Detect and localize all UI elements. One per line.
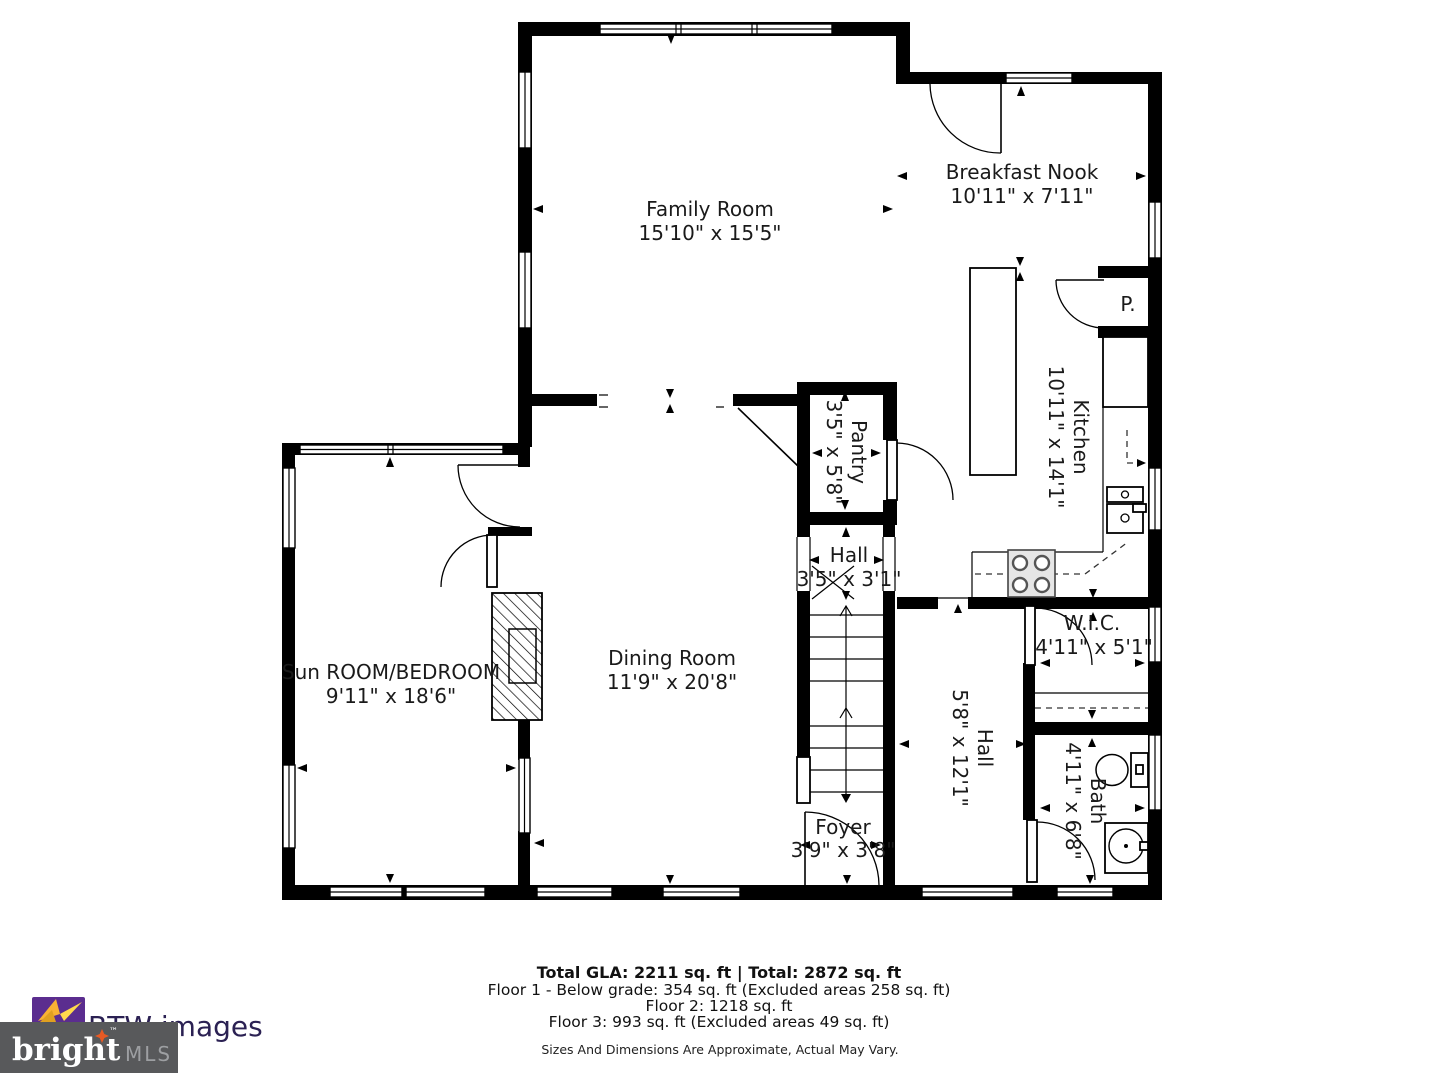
trademark-symbol: ™ <box>109 1027 118 1037</box>
footer-disclaimer: Sizes And Dimensions Are Approximate, Ac… <box>541 1042 898 1057</box>
kitchen-sink-icon <box>1107 487 1146 533</box>
room-label-kitchen: Kitchen <box>1069 399 1093 474</box>
branding: BTW images bright ™ MLS <box>0 997 263 1073</box>
fireplace-icon <box>492 593 542 720</box>
room-dims-pantry: 3'5" x 5'8" <box>822 400 846 505</box>
stove-icon <box>1008 550 1055 597</box>
room-label-hall-lower: Hall <box>973 729 997 767</box>
room-dims-wic: 4'11" x 5'1" <box>1035 635 1153 659</box>
walls <box>282 22 1162 900</box>
room-label-dining: Dining Room <box>608 646 736 670</box>
room-label-wic: W.I.C. <box>1064 611 1120 635</box>
bath-sink-icon <box>1105 823 1148 873</box>
room-dims-kitchen: 10'11" x 14'1" <box>1044 365 1068 508</box>
mls-suffix-text: MLS <box>125 1042 172 1066</box>
floor-plan-canvas: Family Room 15'10" x 15'5" Breakfast Noo… <box>0 0 1440 1080</box>
footer-total: Total GLA: 2211 sq. ft | Total: 2872 sq.… <box>537 963 902 983</box>
room-label-family: Family Room <box>646 197 774 221</box>
kitchen-island <box>970 268 1016 475</box>
room-labels: Family Room 15'10" x 15'5" Breakfast Noo… <box>282 160 1153 862</box>
room-dims-nook: 10'11" x 7'11" <box>950 184 1093 208</box>
room-dims-sunroom: 9'11" x 18'6" <box>326 684 456 708</box>
footer: Total GLA: 2211 sq. ft | Total: 2872 sq.… <box>488 963 951 1057</box>
room-dims-dining: 11'9" x 20'8" <box>607 670 737 694</box>
closet-shelving <box>1035 693 1148 708</box>
room-label-foyer: Foyer <box>815 815 871 839</box>
footer-floor3: Floor 3: 993 sq. ft (Excluded areas 49 s… <box>549 1013 890 1031</box>
refrigerator <box>1103 337 1148 407</box>
room-label-bath: Bath <box>1086 778 1110 825</box>
floor-plan-page: Family Room 15'10" x 15'5" Breakfast Noo… <box>0 0 1440 1080</box>
room-dims-hall-lower: 5'8" x 12'1" <box>948 689 972 807</box>
room-label-pantry-closet: P. <box>1120 292 1135 316</box>
staircase <box>810 566 883 803</box>
room-dims-family: 15'10" x 15'5" <box>638 221 781 245</box>
room-label-nook: Breakfast Nook <box>946 160 1099 184</box>
room-label-hall-upper: Hall <box>830 543 868 567</box>
room-label-sunroom: Sun ROOM/BEDROOM <box>282 660 500 684</box>
room-dims-hall-upper: 3'5" x 3'1" <box>797 567 902 591</box>
room-label-pantry: Pantry <box>847 420 871 484</box>
room-dims-bath: 4'11" x 6'8" <box>1061 742 1085 860</box>
room-dims-foyer: 3'9" x 3'8" <box>791 838 896 862</box>
